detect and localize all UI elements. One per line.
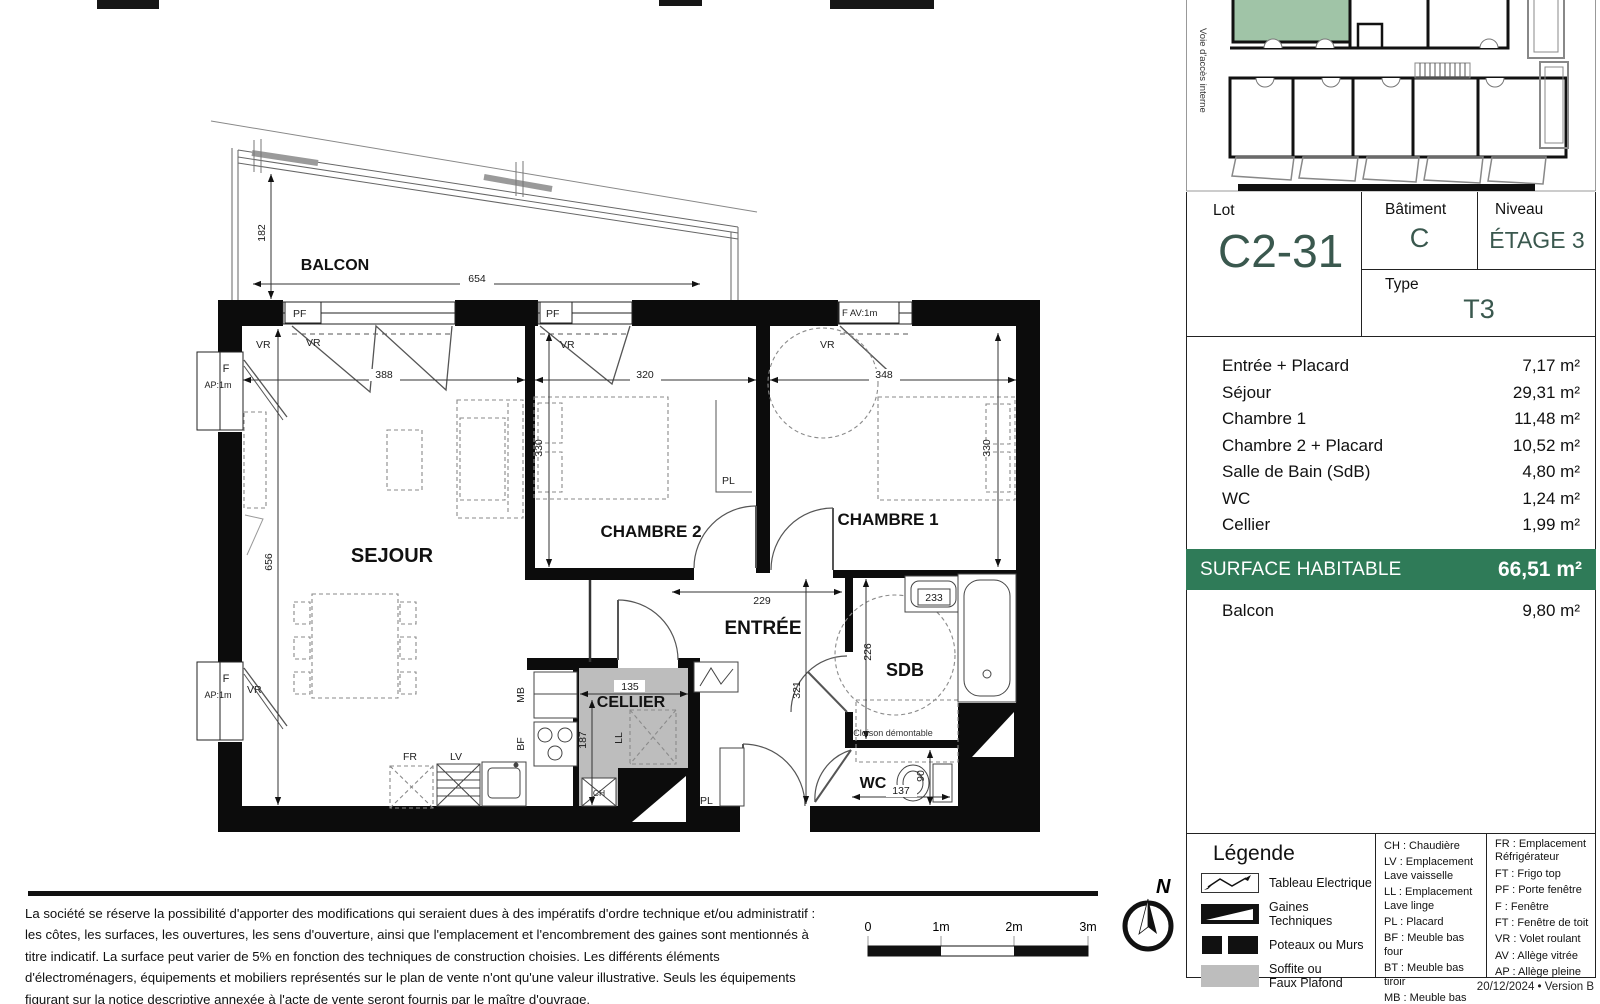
window-left-upper-f: F bbox=[223, 363, 230, 375]
area-label: Cellier bbox=[1222, 515, 1270, 535]
dim-ch2-h: 330 bbox=[533, 439, 545, 457]
keyplan-road-bar bbox=[1238, 184, 1535, 191]
lot-label: Lot bbox=[1213, 202, 1361, 220]
areas-list: Entrée + Placard 7,17 m² Séjour 29,31 m²… bbox=[1186, 337, 1596, 539]
label-cloison: Cloison démontable bbox=[853, 728, 933, 738]
legend-row-gaines: Gaines Techniques bbox=[1201, 900, 1375, 928]
area-value: 1,99 m² bbox=[1522, 515, 1580, 535]
abbrev-item: BF : Meuble bas four bbox=[1384, 932, 1482, 959]
tableau-electrique-icon bbox=[1201, 873, 1259, 893]
area-row-chambre1: Chambre 1 11,48 m² bbox=[1186, 406, 1596, 433]
area-row-sejour: Séjour 29,31 m² bbox=[1186, 380, 1596, 407]
tag-vr-4: VR bbox=[820, 339, 835, 351]
area-value: 4,80 m² bbox=[1522, 462, 1580, 482]
legend-abbreviations-col2: CH : Chaudière LV : Emplacement Lave vai… bbox=[1376, 834, 1487, 977]
window-pf2-label: PF bbox=[546, 308, 559, 320]
type-label: Type bbox=[1385, 276, 1596, 294]
disclaimer-text: La société se réserve la possibilité d'a… bbox=[25, 903, 825, 1004]
dim-cellier-w: 135 bbox=[621, 681, 639, 693]
tag-vr-3: VR bbox=[560, 339, 575, 351]
tag-bf: BF bbox=[515, 737, 527, 750]
floor-plan-sheet: BALCON bbox=[0, 0, 1600, 1004]
dim-entree-h: 321 bbox=[791, 681, 803, 699]
tag-vr-2: VR bbox=[306, 337, 321, 349]
abbrev-item: VR : Volet roulant bbox=[1495, 933, 1593, 946]
niveau-cell: Niveau ÉTAGE 3 bbox=[1478, 192, 1596, 270]
scale-tick-1m: 1m bbox=[932, 920, 949, 934]
area-row-chambre2: Chambre 2 + Placard 10,52 m² bbox=[1186, 433, 1596, 460]
area-label: WC bbox=[1222, 489, 1250, 509]
dim-ch2-w: 320 bbox=[636, 369, 654, 381]
dim-wc-h: 90 bbox=[915, 770, 927, 782]
area-label: Chambre 1 bbox=[1222, 409, 1306, 429]
window-pf1-label: PF bbox=[293, 308, 306, 320]
abbrev-item: LV : Emplacement Lave vaisselle bbox=[1384, 856, 1482, 883]
tag-fr: FR bbox=[403, 751, 417, 763]
room-label-wc: WC bbox=[860, 775, 887, 792]
area-label: Séjour bbox=[1222, 383, 1271, 403]
balcon-row: Balcon 9,80 m² bbox=[1186, 598, 1596, 624]
room-label-sejour: SEJOUR bbox=[351, 545, 434, 567]
scale-bar bbox=[868, 936, 1088, 956]
abbrev-item: CH : Chaudière bbox=[1384, 840, 1482, 853]
legend-box: Légende Tableau Electrique Gain bbox=[1186, 833, 1596, 978]
cropped-top-fragments bbox=[97, 0, 934, 9]
dim-sejour-w: 388 bbox=[375, 369, 393, 381]
area-row-entree: Entrée + Placard 7,17 m² bbox=[1186, 353, 1596, 380]
window-left-lower-f: F bbox=[223, 673, 230, 685]
balcon-value: 9,80 m² bbox=[1522, 601, 1580, 621]
window-left-upper bbox=[197, 352, 243, 430]
legend-row-tableau: Tableau Electrique bbox=[1201, 873, 1375, 893]
room-label-cellier: CELLIER bbox=[597, 694, 666, 711]
tag-ch: CH bbox=[593, 788, 605, 798]
info-panel: Voie d'accès interne bbox=[1178, 0, 1600, 1004]
area-row-wc: WC 1,24 m² bbox=[1186, 486, 1596, 513]
area-row-sdb: Salle de Bain (SdB) 4,80 m² bbox=[1186, 459, 1596, 486]
window-fav-label: F AV:1m bbox=[842, 308, 877, 319]
abbrev-item: FT : Frigo top bbox=[1495, 868, 1593, 881]
window-left-upper-ap: AP:1m bbox=[204, 380, 231, 390]
abbrev-item: FT : Fenêtre de toit bbox=[1495, 917, 1593, 930]
legend-symbols-column: Légende Tableau Electrique Gain bbox=[1187, 834, 1376, 977]
tag-ll: LL bbox=[613, 732, 625, 744]
window-left-lower bbox=[197, 662, 243, 740]
abbrev-item: PL : Placard bbox=[1384, 916, 1482, 929]
dim-sejour-h: 656 bbox=[263, 553, 275, 571]
poteaux-murs-icon bbox=[1201, 935, 1259, 955]
niveau-value: ÉTAGE 3 bbox=[1478, 227, 1596, 254]
dim-sdb-w: 233 bbox=[925, 592, 943, 604]
keyplan-access-label: Voie d'accès interne bbox=[1197, 28, 1208, 113]
tag-vr-5: VR bbox=[247, 684, 262, 696]
lot-cell: Lot C2-31 bbox=[1186, 192, 1362, 337]
tag-pl-chambre2: PL bbox=[722, 475, 735, 487]
dim-ch1-w: 348 bbox=[875, 369, 893, 381]
floor-plan-drawing: BALCON bbox=[0, 0, 1178, 1004]
north-compass-icon bbox=[1125, 899, 1171, 949]
scale-tick-2m: 2m bbox=[1005, 920, 1022, 934]
dim-entree-w: 229 bbox=[753, 595, 771, 607]
version-stamp: 20/12/2024 • Version B bbox=[1186, 981, 1594, 993]
batiment-cell: Bâtiment C bbox=[1362, 192, 1478, 270]
legend-label: Poteaux ou Murs bbox=[1269, 938, 1364, 952]
area-value: 1,24 m² bbox=[1522, 489, 1580, 509]
abbrev-item: LL : Emplacement Lave linge bbox=[1384, 886, 1482, 913]
abbrev-item: FR : Emplacement Réfrigérateur bbox=[1495, 838, 1593, 865]
balcon-label: Balcon bbox=[1222, 601, 1274, 621]
dim-cellier-h: 187 bbox=[577, 731, 589, 749]
dim-sdb-h: 226 bbox=[862, 643, 874, 661]
abbrev-item: F : Fenêtre bbox=[1495, 901, 1593, 914]
dim-balcon-d: 182 bbox=[256, 224, 268, 242]
room-label-sdb: SDB bbox=[886, 660, 924, 680]
type-value: T3 bbox=[1362, 294, 1596, 325]
abbrev-item: MB : Meuble bas bbox=[1384, 992, 1482, 1004]
area-row-cellier: Cellier 1,99 m² bbox=[1186, 512, 1596, 539]
surface-habitable-band: SURFACE HABITABLE 66,51 m² bbox=[1186, 549, 1596, 590]
type-cell: Type T3 bbox=[1362, 270, 1596, 337]
batiment-label: Bâtiment bbox=[1385, 201, 1477, 219]
room-label-chambre2: CHAMBRE 2 bbox=[600, 522, 701, 541]
north-label: N bbox=[1156, 876, 1171, 898]
dim-ch1-h: 330 bbox=[981, 439, 993, 457]
area-value: 7,17 m² bbox=[1522, 356, 1580, 376]
surface-value: 66,51 m² bbox=[1498, 558, 1582, 582]
area-value: 29,31 m² bbox=[1513, 383, 1580, 403]
tag-mb: MB bbox=[515, 687, 527, 703]
key-plan: Voie d'accès interne bbox=[1186, 0, 1596, 192]
scale-tick-0: 0 bbox=[865, 920, 872, 934]
legend-abbreviations-col3: FR : Emplacement Réfrigérateur FT : Frig… bbox=[1487, 834, 1595, 977]
area-label: Salle de Bain (SdB) bbox=[1222, 462, 1370, 482]
legend-row-poteaux: Poteaux ou Murs bbox=[1201, 935, 1375, 955]
legend-label: Tableau Electrique bbox=[1269, 876, 1372, 890]
dim-balcon-w: 654 bbox=[468, 273, 486, 285]
lot-value: C2-31 bbox=[1218, 224, 1361, 278]
dim-wc-w: 137 bbox=[892, 785, 910, 797]
legend-title: Légende bbox=[1213, 842, 1375, 866]
abbrev-item: AP : Allège pleine bbox=[1495, 966, 1593, 979]
surface-label: SURFACE HABITABLE bbox=[1200, 559, 1402, 581]
abbrev-item: AV : Allège vitrée bbox=[1495, 950, 1593, 963]
area-value: 10,52 m² bbox=[1513, 436, 1580, 456]
tag-vr-1: VR bbox=[256, 339, 271, 351]
room-label-chambre1: CHAMBRE 1 bbox=[837, 510, 938, 529]
area-label: Chambre 2 + Placard bbox=[1222, 436, 1383, 456]
kitchen-fixtures bbox=[437, 672, 577, 806]
footer-rule bbox=[28, 891, 1098, 896]
gaines-techniques-icon bbox=[1201, 904, 1259, 924]
area-label: Entrée + Placard bbox=[1222, 356, 1349, 376]
window-left-lower-ap: AP:1m bbox=[204, 690, 231, 700]
room-label-entree: ENTRÉE bbox=[724, 617, 801, 639]
wall-element bbox=[245, 515, 263, 555]
batiment-value: C bbox=[1362, 223, 1477, 254]
abbrev-item: PF : Porte fenêtre bbox=[1495, 884, 1593, 897]
area-value: 11,48 m² bbox=[1514, 409, 1580, 429]
legend-label: Gaines Techniques bbox=[1269, 900, 1375, 928]
room-label-balcon: BALCON bbox=[301, 257, 369, 274]
tag-lv: LV bbox=[450, 751, 462, 763]
niveau-label: Niveau bbox=[1495, 201, 1596, 219]
scale-tick-3m: 3m bbox=[1079, 920, 1096, 934]
tag-pl-entree: PL bbox=[700, 795, 713, 807]
